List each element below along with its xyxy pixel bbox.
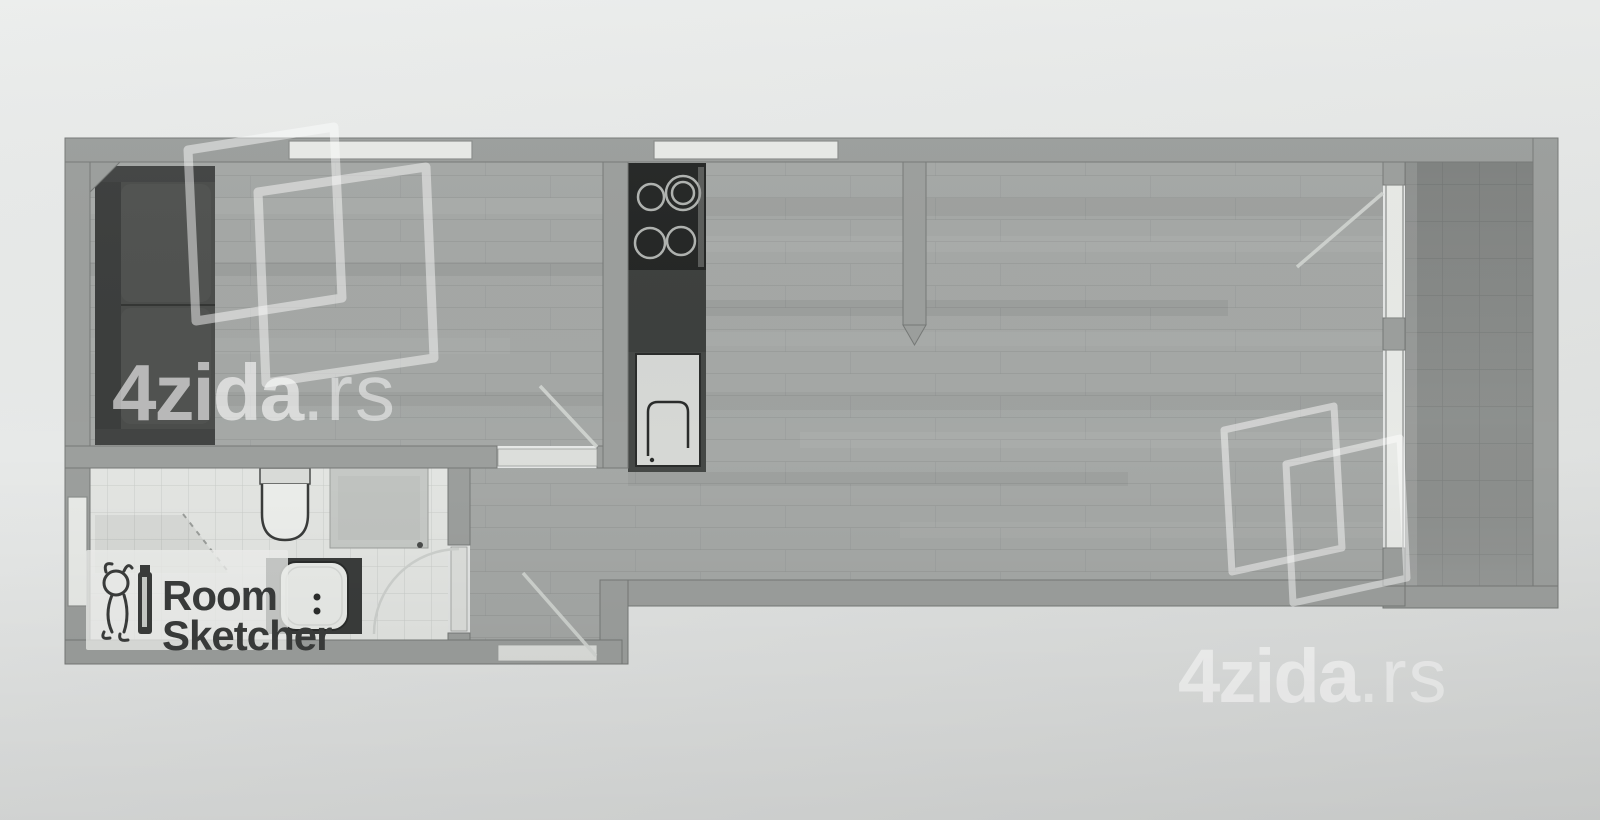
photo-shade-overlay [0,0,1600,820]
floorplan-photo: 4zida.rs 4zida.rs Room Sketcher [0,0,1600,820]
floorplan-drawing: 4zida.rs 4zida.rs Room Sketcher [0,0,1600,820]
